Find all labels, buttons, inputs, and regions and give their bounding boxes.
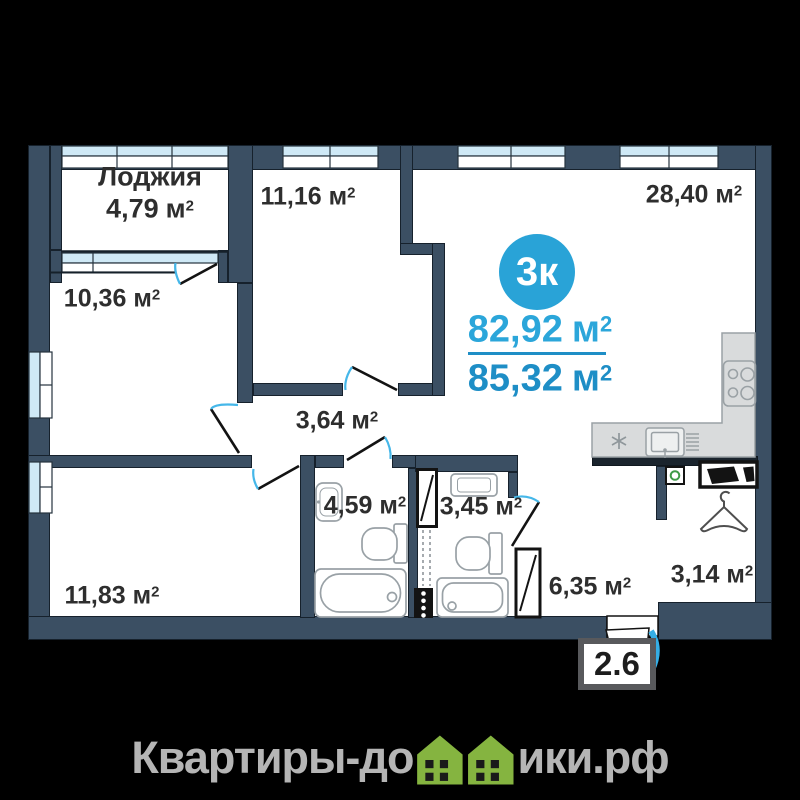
full-area-total: 85,32м2 <box>468 358 612 401</box>
duct-dashed <box>423 530 430 586</box>
room-label-corridor: 3,64м2 <box>296 407 379 436</box>
room-label-hall: 6,35м2 <box>549 573 632 602</box>
rooms-count-badge: 3к <box>499 234 575 310</box>
room-label-bedroom-bottom: 11,83м2 <box>64 582 159 611</box>
entrance-width-tag: 2.6 <box>578 638 656 690</box>
room-label-bedroom-left: 10,36м2 <box>64 285 160 314</box>
vent-icon <box>666 467 684 484</box>
room-label-entry: 3,14м2 <box>671 561 754 590</box>
totals-divider <box>468 352 606 355</box>
shaft-icon <box>418 470 437 527</box>
toilet-icon <box>456 533 502 574</box>
balcony-window <box>50 252 228 273</box>
room-label-kitchen-living: 28,40м2 <box>646 181 742 210</box>
bathtub-icon <box>437 578 508 617</box>
floor-plan-canvas: Лоджия 4,79м2 11,16м2 28,40м2 10,36м2 3,… <box>0 0 800 800</box>
plan-drawing <box>0 0 800 800</box>
living-area-total: 82,92м2 <box>468 309 612 352</box>
vent-column-icon <box>414 588 433 618</box>
window <box>29 352 52 513</box>
room-label-bedroom-top: 11,16м2 <box>260 183 355 212</box>
hanger-icon <box>701 492 747 531</box>
room-label-bathroom: 4,59м2 <box>324 492 407 521</box>
shaft-icon <box>516 549 540 617</box>
room-label-toilet: 3,45м2 <box>440 493 523 522</box>
bathtub-icon <box>315 569 406 617</box>
toilet-icon <box>362 524 407 563</box>
wardrobe-icon <box>700 462 757 487</box>
room-label-loggia: Лоджия 4,79м2 <box>98 161 202 226</box>
